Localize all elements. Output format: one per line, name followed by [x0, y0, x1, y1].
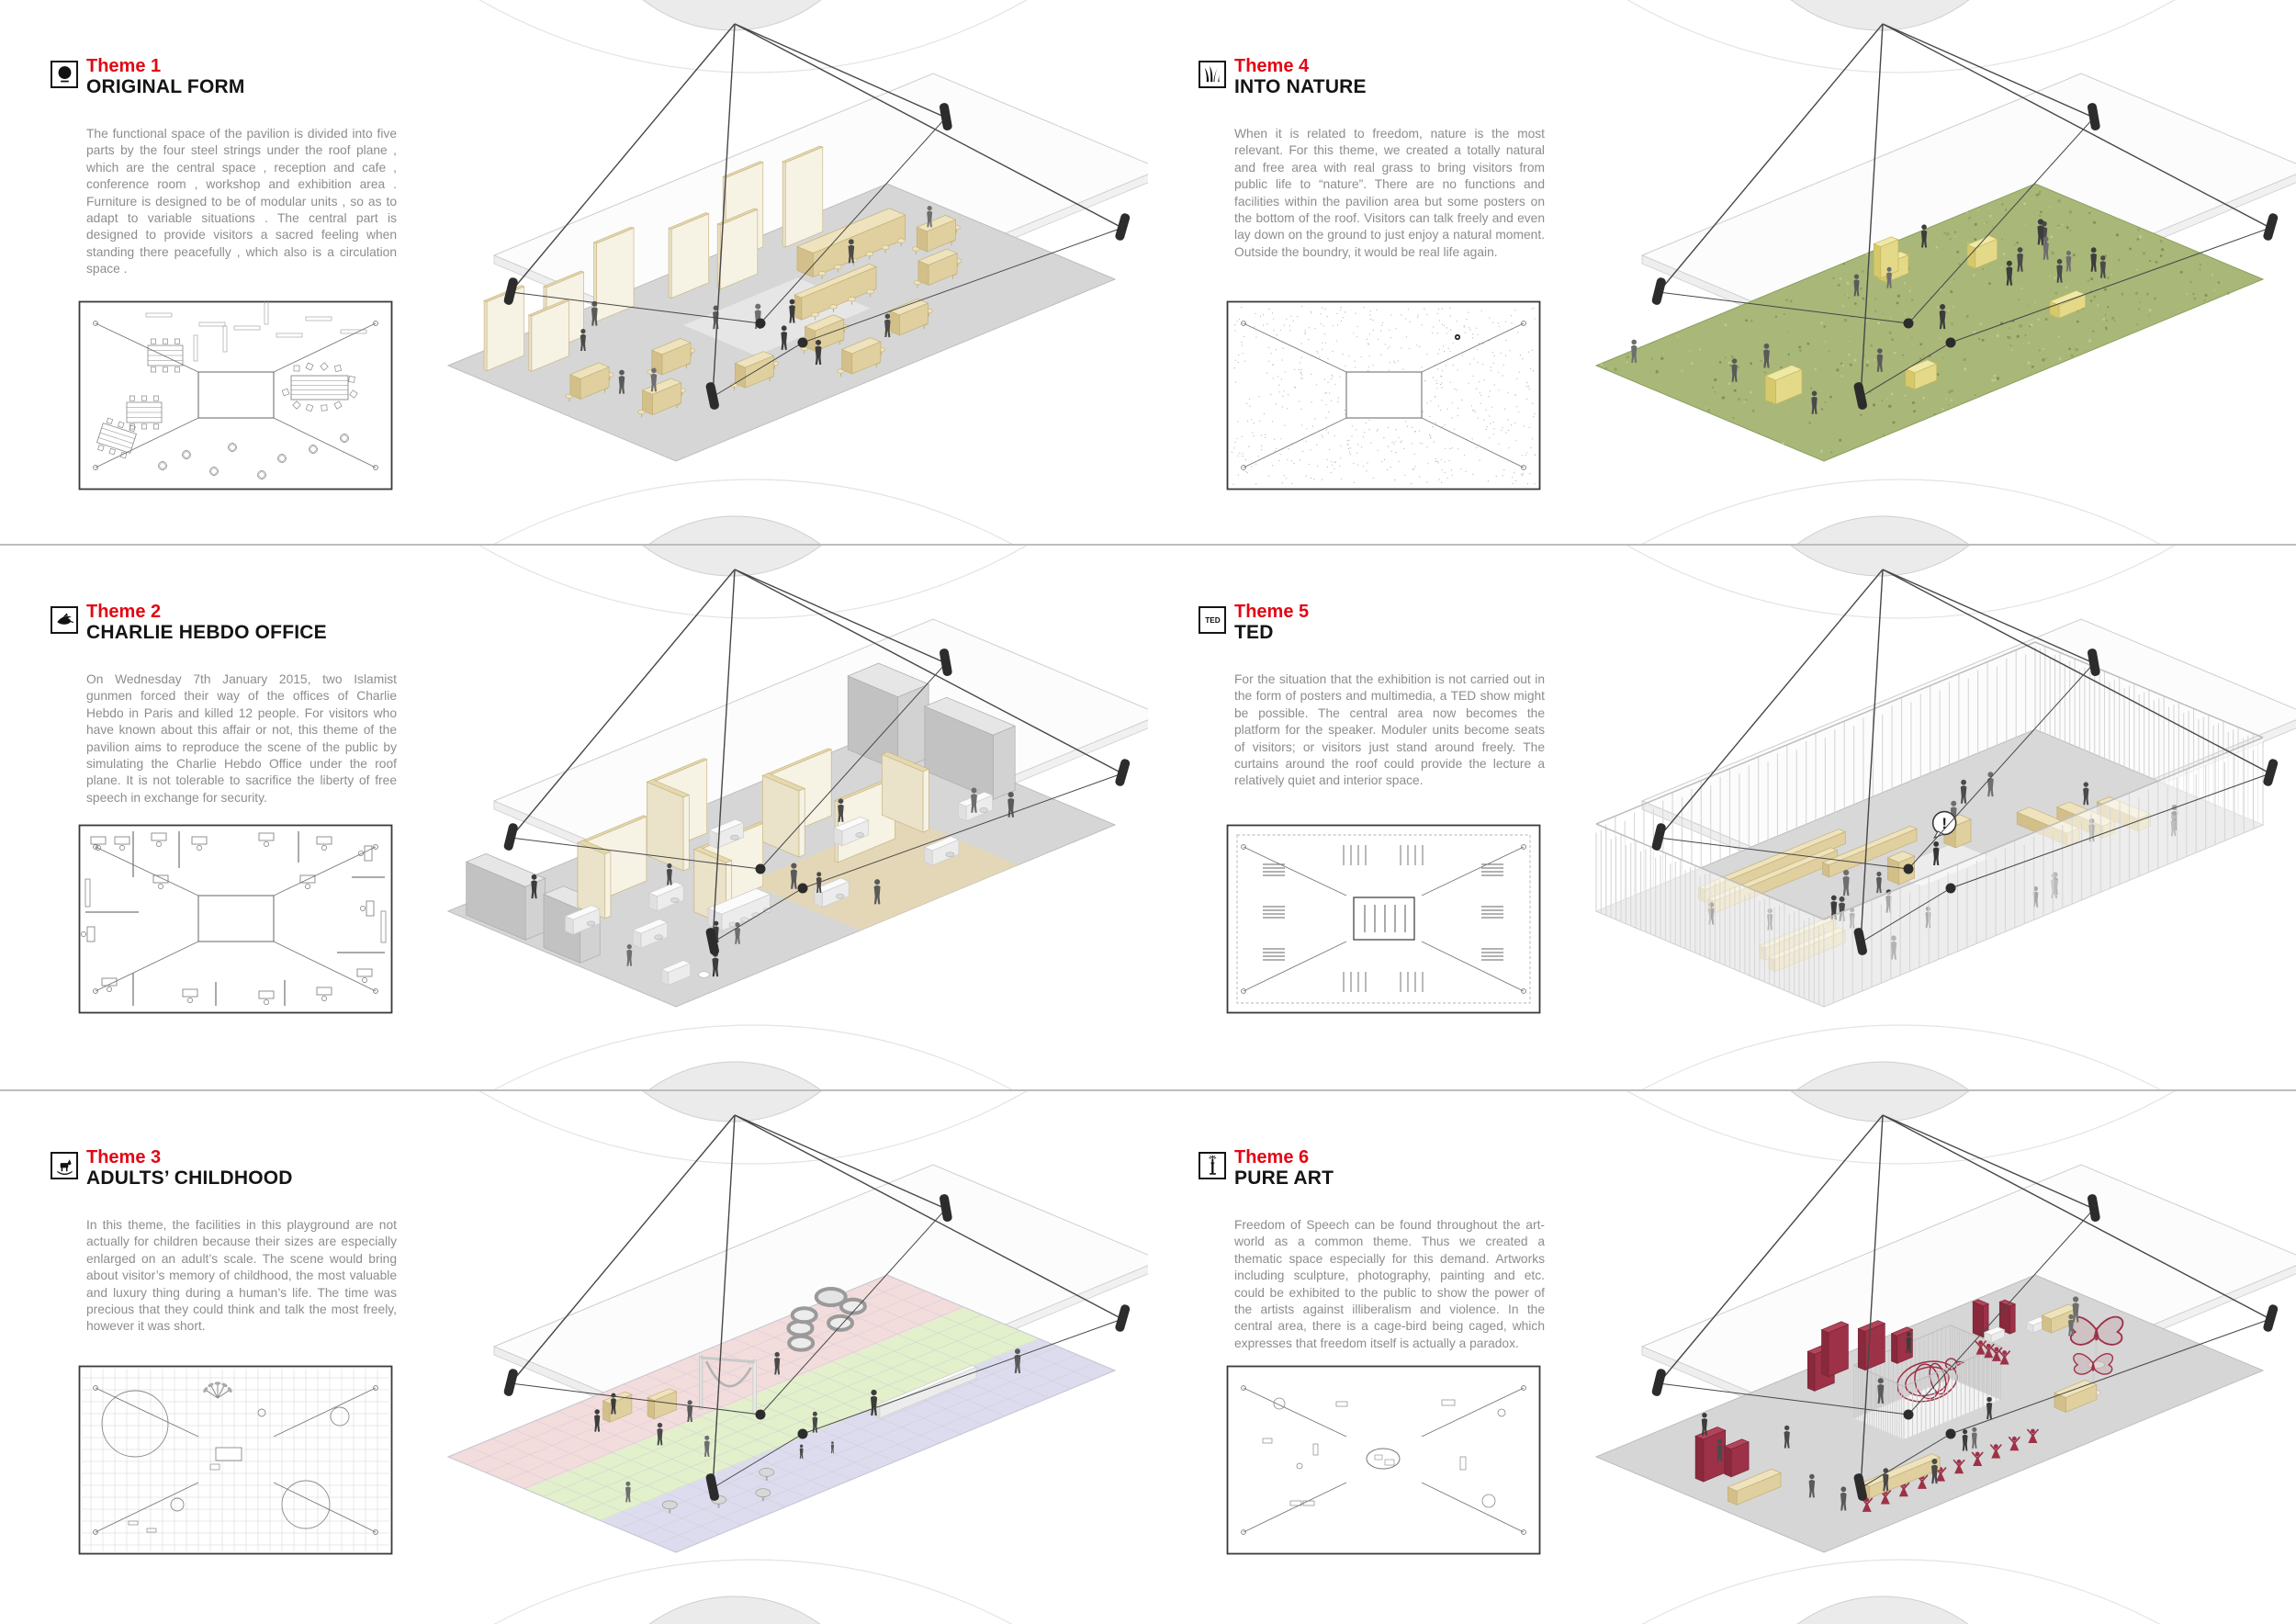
theme-4-icon — [1199, 61, 1226, 88]
theme-2-plan — [78, 824, 393, 1014]
panel-theme-1: Theme 1 ORIGINAL FORM The functional spa… — [0, 0, 1148, 544]
theme-description: For the situation that the exhibition is… — [1234, 671, 1545, 790]
dove-icon — [54, 609, 75, 630]
panel-theme-4: Theme 4 INTO NATURE When it is related t… — [1148, 0, 2296, 544]
theme-2-icon — [51, 606, 78, 634]
statue-of-liberty-icon — [1202, 1155, 1223, 1176]
theme-title: INTO NATURE — [1234, 76, 1367, 98]
theme-1-icon — [51, 61, 78, 88]
theme-title: PURE ART — [1234, 1167, 1334, 1190]
theme-4-plan — [1226, 300, 1541, 491]
theme-6-plan — [1226, 1365, 1541, 1555]
theme-description: When it is related to freedom, nature is… — [1234, 126, 1545, 261]
theme-6-icon — [1199, 1152, 1226, 1179]
dot-circle-icon — [54, 63, 75, 85]
theme-5-icon: TED — [1199, 606, 1226, 634]
theme-number: Theme 2 — [86, 602, 161, 623]
ted-icon: TED — [1202, 609, 1223, 630]
svg-text:TED: TED — [1205, 615, 1221, 624]
panel-theme-5: ! TED Theme 5 TED For the situation that… — [1148, 546, 2296, 1089]
theme-description: Freedom of Speech can be found throughou… — [1234, 1217, 1545, 1352]
panel-theme-3: Theme 3 ADULTS’ CHILDHOOD In this theme,… — [0, 1091, 1148, 1624]
theme-title: TED — [1234, 622, 1274, 644]
theme-title: ORIGINAL FORM — [86, 76, 245, 98]
theme-3-icon — [51, 1152, 78, 1179]
theme-5-plan — [1226, 824, 1541, 1014]
theme-title: ADULTS’ CHILDHOOD — [86, 1167, 293, 1190]
theme-number: Theme 6 — [1234, 1147, 1309, 1168]
theme-number: Theme 5 — [1234, 602, 1309, 623]
grass-icon — [1202, 63, 1223, 85]
theme-description: In this theme, the facilities in this pl… — [86, 1217, 397, 1336]
theme-title: CHARLIE HEBDO OFFICE — [86, 622, 327, 644]
theme-number: Theme 3 — [86, 1147, 161, 1168]
theme-description: On Wednesday 7th January 2015, two Islam… — [86, 671, 397, 806]
panel-theme-2: Theme 2 CHARLIE HEBDO OFFICE On Wednesda… — [0, 546, 1148, 1089]
theme-3-plan — [78, 1365, 393, 1555]
theme-description: The functional space of the pavilion is … — [86, 126, 397, 278]
panel-theme-6: Theme 6 PURE ART Freedom of Speech can b… — [1148, 1091, 2296, 1624]
rocking-horse-icon — [54, 1155, 75, 1176]
theme-number: Theme 4 — [1234, 56, 1309, 77]
theme-1-plan — [78, 300, 393, 491]
theme-number: Theme 1 — [86, 56, 161, 77]
